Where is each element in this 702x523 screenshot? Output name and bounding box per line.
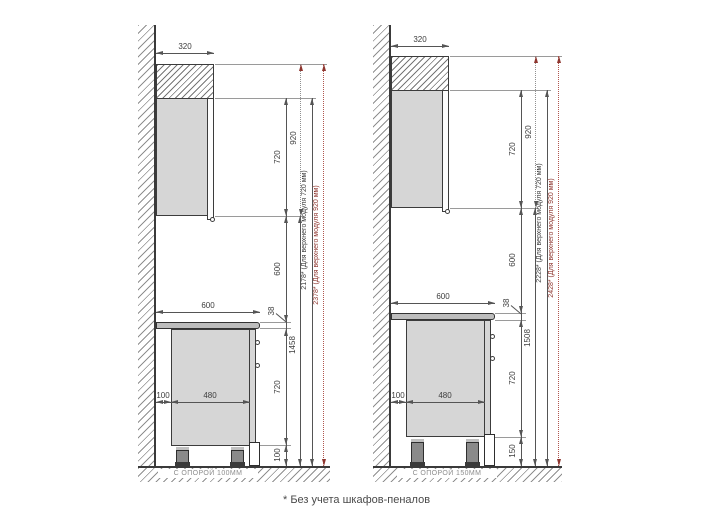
base-cabinet-knob-top [490, 334, 495, 339]
dim-upper-module-720 [521, 90, 522, 208]
dim-upper-module-720 [286, 98, 287, 216]
dim-label-total-920: 2378* (Для верхнего модуля 920 мм) [312, 158, 322, 332]
extension-line-920-top [450, 56, 562, 57]
diagram-support-100: 320 С ОПОРОЙ 100ММ 600 100 480 720 6 [138, 25, 343, 487]
dim-leg-height [521, 437, 522, 466]
extension-line-cabinet-bottom [215, 216, 304, 217]
dim-label-38: 38 [267, 296, 277, 326]
dim-label-100-legs: 100 [273, 440, 283, 470]
dim-total-height-920 [323, 64, 324, 466]
dim-label-100-gap: 100 [383, 391, 413, 401]
cabinet-leg-mid [466, 439, 479, 466]
dim-label-720-base: 720 [508, 363, 518, 393]
dim-base-height [521, 320, 522, 437]
dim-label-720-upper: 720 [508, 134, 518, 164]
base-cabinet-knob-bottom [255, 363, 260, 368]
dim-label-1508: 1508 [523, 323, 533, 353]
cabinet-leg-mid [231, 447, 244, 466]
wall-cabinet-body [156, 98, 208, 216]
cabinet-front-leg [249, 442, 260, 466]
extension-line-920-top [215, 64, 327, 65]
dim-wall-cabinet-depth [391, 46, 449, 47]
wall-cabinet-920-extension [391, 56, 449, 91]
dim-label-920: 920 [289, 123, 299, 153]
countertop [156, 322, 260, 329]
dim-label-total-720: 2228* (Для верхнего модуля 720 мм) [535, 136, 545, 310]
support-height-label: С ОПОРОЙ 100ММ [158, 469, 258, 478]
dim-counter-thickness [286, 322, 287, 329]
dim-total-height-920 [558, 56, 559, 466]
cabinet-front-leg [484, 434, 495, 466]
dim-counter-to-upper [521, 208, 522, 313]
dim-base-height [286, 329, 287, 445]
dim-label-total-920: 2428* (Для верхнего модуля 920 мм) [547, 151, 557, 325]
dim-label-720-upper: 720 [273, 142, 283, 172]
base-cabinet-body [406, 320, 491, 437]
footnote: * Без учета шкафов-пеналов [283, 494, 430, 506]
dim-countertop-width [391, 303, 495, 304]
base-cabinet-knob-top [255, 340, 260, 345]
dim-wall-gap [156, 402, 171, 403]
dim-label-320: 320 [156, 42, 214, 52]
dim-label-600-gap: 600 [273, 254, 283, 284]
dim-counter-thickness [521, 313, 522, 320]
diagram-support-150: 320 С ОПОРОЙ 150ММ 600 100 480 720 6 [373, 25, 578, 487]
base-cabinet-body [171, 329, 256, 446]
technical-drawing-canvas: 320 С ОПОРОЙ 100ММ 600 100 480 720 6 [0, 0, 702, 523]
dim-label-38: 38 [502, 288, 512, 318]
support-height-label: С ОПОРОЙ 150ММ [397, 469, 497, 478]
dim-label-total-720: 2178* (Для верхнего модуля 720 мм) [300, 143, 310, 317]
dim-counter-to-upper [286, 216, 287, 322]
wall-cabinet-door [442, 90, 449, 212]
countertop [391, 313, 495, 320]
base-cabinet-front-line [484, 320, 485, 437]
dim-label-320: 320 [391, 35, 449, 45]
dim-label-150-legs: 150 [508, 436, 518, 466]
dim-label-480: 480 [430, 391, 460, 401]
cabinet-leg-back [176, 447, 189, 466]
dim-wall-cabinet-depth [156, 53, 214, 54]
dim-base-depth [406, 402, 485, 403]
dim-wall-gap [391, 402, 406, 403]
dim-base-depth [171, 402, 250, 403]
extension-line-cabinet-bottom [450, 208, 539, 209]
base-cabinet-front-line [249, 329, 250, 446]
dim-label-600-width: 600 [391, 292, 495, 302]
wall-cabinet-door-knob [445, 209, 450, 214]
dim-label-100-gap: 100 [148, 391, 178, 401]
dim-leg-height [286, 445, 287, 466]
wall-cabinet-door [207, 98, 214, 220]
cabinet-leg-back [411, 439, 424, 466]
dim-label-1458: 1458 [288, 330, 298, 360]
wall-cabinet-door-knob [210, 217, 215, 222]
wall-cabinet-920-extension [156, 64, 214, 99]
dim-label-920: 920 [524, 117, 534, 147]
dim-label-600-gap: 600 [508, 245, 518, 275]
dim-label-480: 480 [195, 391, 225, 401]
wall-cabinet-body [391, 90, 443, 208]
dim-label-600-width: 600 [156, 301, 260, 311]
dim-label-720-base: 720 [273, 372, 283, 402]
base-cabinet-knob-bottom [490, 356, 495, 361]
dim-countertop-width [156, 312, 260, 313]
